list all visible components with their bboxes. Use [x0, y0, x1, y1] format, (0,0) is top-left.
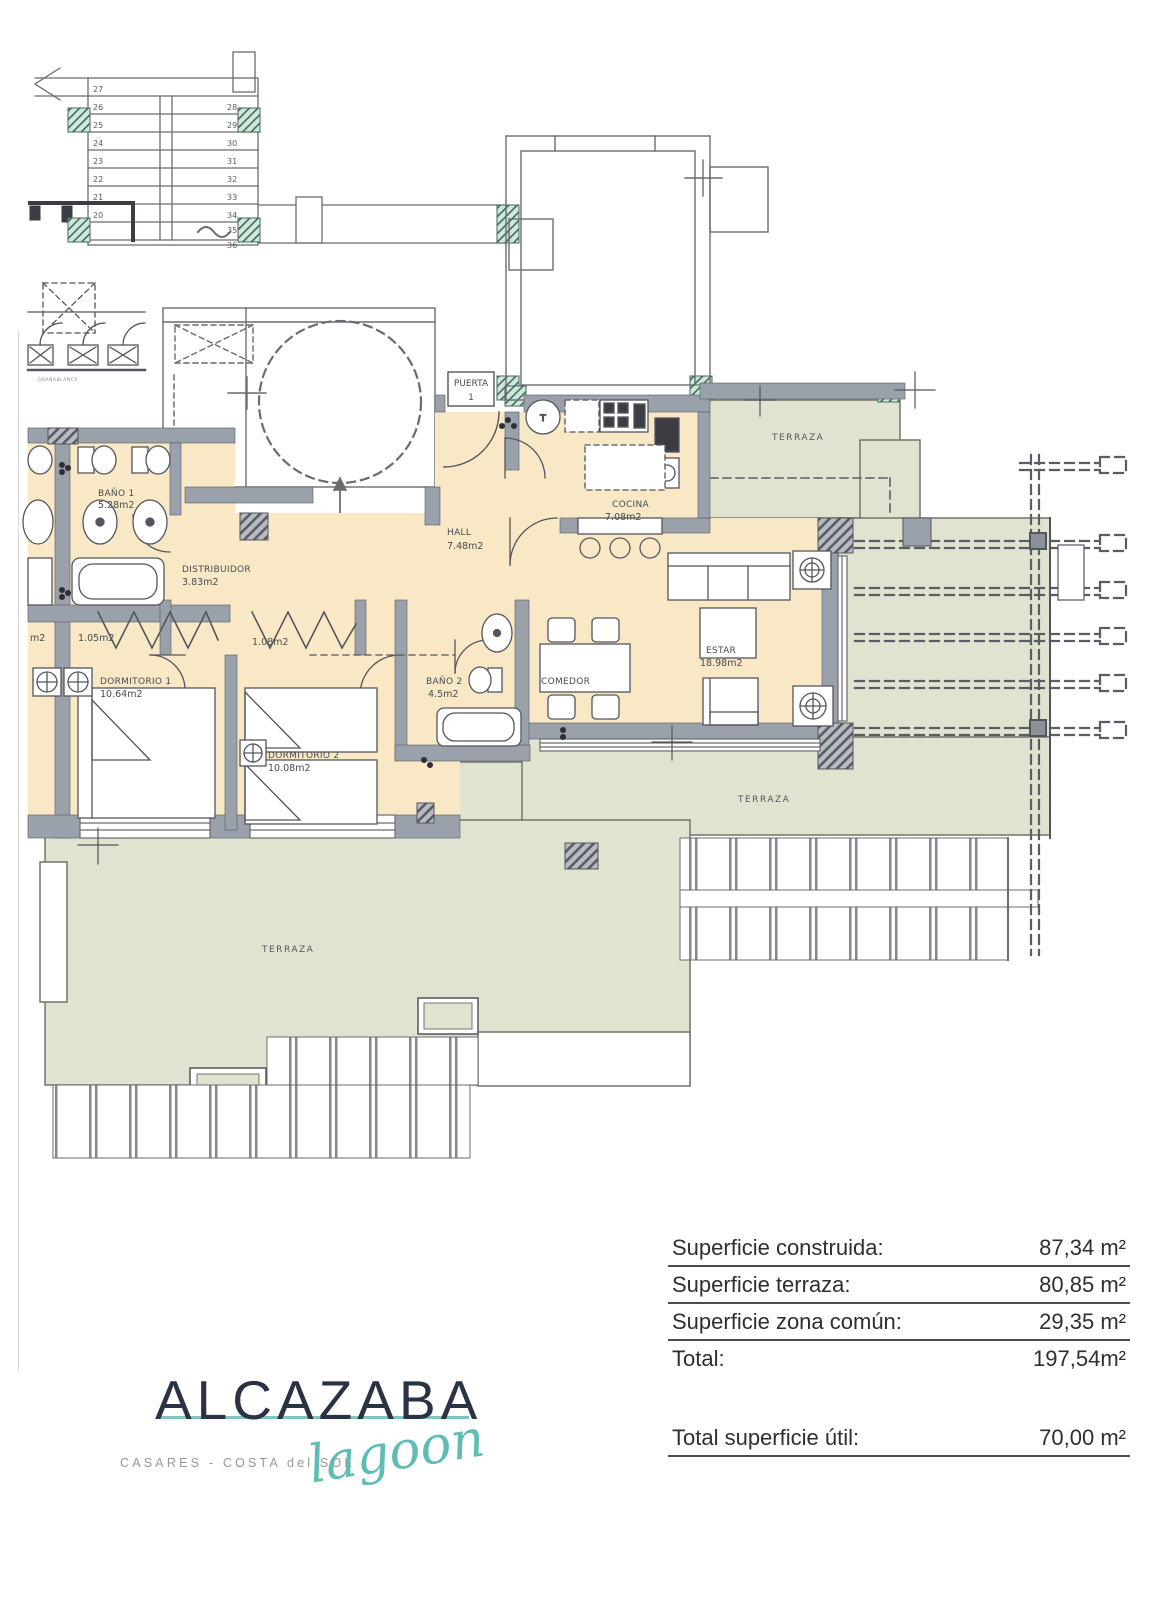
- svg-text:21: 21: [93, 193, 103, 202]
- table-row-total-util: Total superficie útil: 70,00 m²: [668, 1420, 1130, 1457]
- kitchen-mark: T: [539, 414, 546, 424]
- label-cocina: COCINA: [612, 500, 650, 510]
- label-hall: HALL: [447, 528, 471, 538]
- svg-text:10.08m2: 10.08m2: [268, 763, 311, 774]
- logo-subtitle: CASARES - COSTA del SOL: [120, 1456, 355, 1470]
- row-label: Superficie construida:: [672, 1235, 884, 1261]
- puerta-label: PUERTA: [454, 379, 489, 389]
- svg-text:36: 36: [227, 241, 237, 250]
- surface-summary-table: Superficie construida: 87,34 m² Superfic…: [668, 1230, 1130, 1457]
- row-label: Total superficie útil:: [672, 1425, 859, 1451]
- label-dorm1: DORMITORIO 1: [100, 677, 171, 687]
- row-value: 70,00 m²: [1039, 1425, 1126, 1451]
- label-closet-partial: m2: [30, 633, 45, 644]
- bathroom1-fixtures: [23, 446, 170, 605]
- svg-text:29: 29: [227, 121, 237, 130]
- svg-text:23: 23: [93, 157, 103, 166]
- row-label: Total:: [672, 1346, 725, 1372]
- svg-text:34: 34: [227, 211, 237, 220]
- svg-text:35: 35: [227, 226, 237, 235]
- svg-text:4.5m2: 4.5m2: [428, 689, 458, 700]
- label-terraza-top: TERRAZA: [771, 433, 824, 443]
- label-comedor: COMEDOR: [541, 677, 590, 687]
- table-row: Superficie zona común: 29,35 m²: [668, 1304, 1130, 1341]
- label-dorm2: DORMITORIO 2: [268, 751, 339, 761]
- svg-text:22: 22: [93, 175, 103, 184]
- svg-text:10.64m2: 10.64m2: [100, 689, 143, 700]
- label-terraza-bottom: TERRAZA: [261, 945, 314, 955]
- row-value: 80,85 m²: [1039, 1272, 1126, 1298]
- svg-text:1: 1: [468, 393, 474, 403]
- row-value: 29,35 m²: [1039, 1309, 1126, 1335]
- courtyard-structure: [506, 136, 768, 400]
- table-row-total: Total: 197,54m²: [668, 1341, 1130, 1376]
- svg-text:20: 20: [93, 211, 103, 220]
- svg-text:32: 32: [227, 175, 237, 184]
- row-label: Superficie zona común:: [672, 1309, 902, 1335]
- scan-edge-line: [18, 330, 19, 1370]
- label-terraza-mid: TERRAZA: [737, 795, 790, 805]
- svg-text:7.48m2: 7.48m2: [447, 541, 483, 552]
- row-label: Superficie terraza:: [672, 1272, 851, 1298]
- label-bano1: BAÑO 1: [98, 488, 135, 499]
- floorplan-page: 27 26 25 24 23 22 21 20 28 29 30 31 32 3…: [0, 0, 1169, 1600]
- table-row: Superficie terraza: 80,85 m²: [668, 1267, 1130, 1304]
- svg-text:30: 30: [227, 139, 237, 148]
- label-estar: ESTAR: [706, 646, 736, 656]
- pergola-right: [680, 838, 1038, 960]
- svg-text:24: 24: [93, 139, 103, 148]
- terrace-right: [838, 518, 1050, 739]
- svg-text:33: 33: [227, 193, 237, 202]
- stairwell: [35, 52, 506, 245]
- table-row: Superficie construida: 87,34 m²: [668, 1230, 1130, 1267]
- svg-text:25: 25: [93, 121, 103, 130]
- svg-text:26: 26: [93, 103, 103, 112]
- structural-columns: [68, 108, 899, 406]
- label-bano2: BAÑO 2: [426, 676, 463, 687]
- alcazaba-lagoon-logo: ALCAZABA lagoon CASARES - COSTA del SOL: [0, 1360, 560, 1560]
- row-value: 197,54m²: [1033, 1346, 1126, 1372]
- svg-text:18.98m2: 18.98m2: [700, 658, 743, 669]
- svg-text:28: 28: [227, 103, 237, 112]
- label-closet2: 1.08m2: [252, 637, 288, 648]
- svg-text:5.28m2: 5.28m2: [98, 500, 134, 511]
- svg-text:7.08m2: 7.08m2: [605, 512, 641, 523]
- svg-text:31: 31: [227, 157, 237, 166]
- label-distribuidor: DISTRIBUIDOR: [182, 565, 251, 575]
- svg-text:3.83m2: 3.83m2: [182, 577, 218, 588]
- row-value: 87,34 m²: [1039, 1235, 1126, 1261]
- svg-text:27: 27: [93, 85, 103, 94]
- lobby-micro-label: GRANABLANCA: [38, 377, 78, 383]
- label-closet1: 1.05m2: [78, 633, 114, 644]
- lobby: [28, 283, 174, 447]
